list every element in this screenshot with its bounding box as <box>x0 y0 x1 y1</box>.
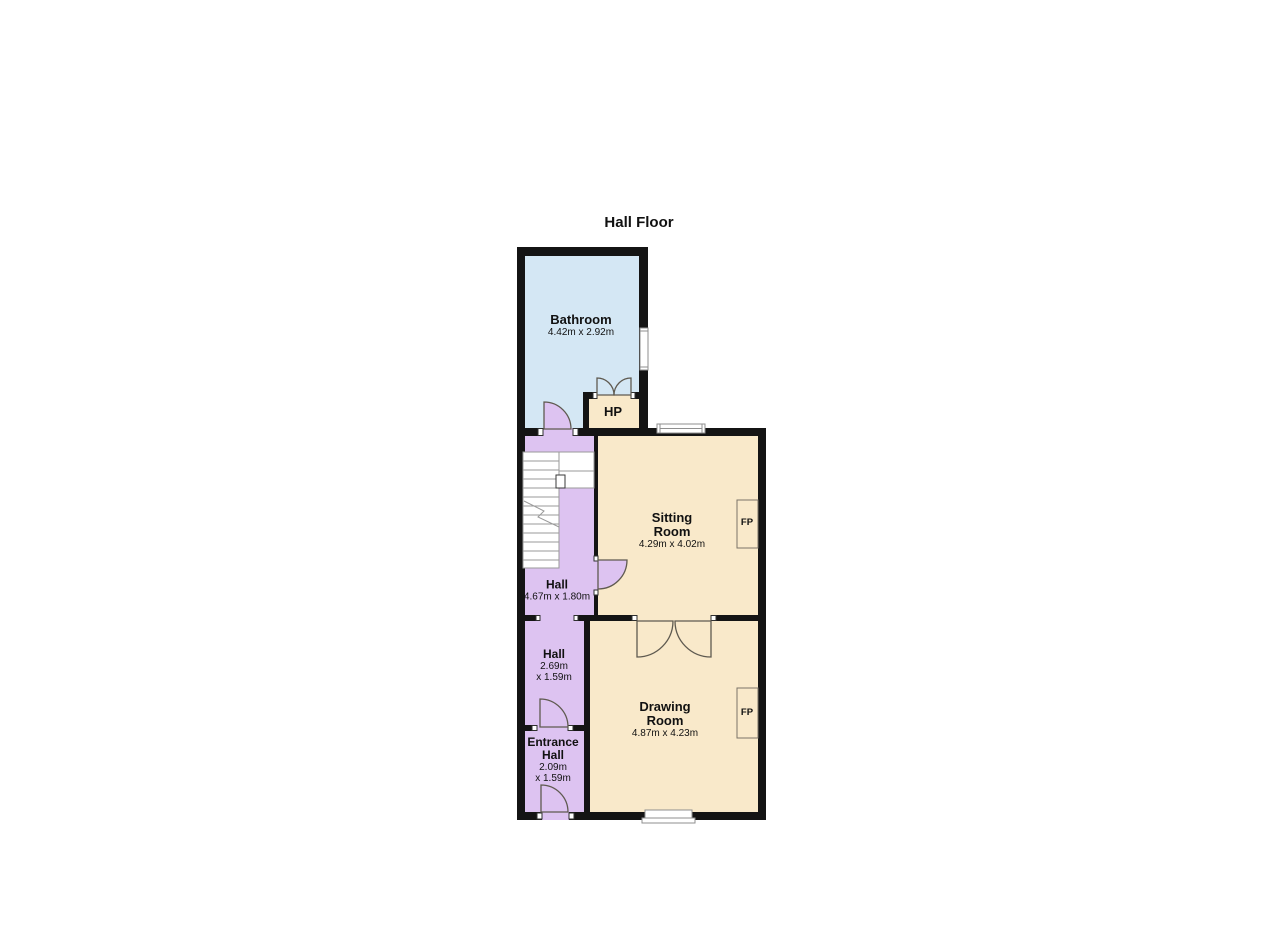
wall-mid-right <box>716 615 758 621</box>
room-name: Hall <box>524 579 590 592</box>
room-dims: x 1.59m <box>527 773 578 784</box>
wall-band-left-stub <box>517 428 538 436</box>
room-dims: 4.87m x 4.23m <box>632 729 698 740</box>
room-name: Entrance <box>527 736 578 749</box>
room-name: Bathroom <box>548 313 614 327</box>
room-name: Hall <box>527 749 578 762</box>
page-title: Hall Floor <box>604 215 673 231</box>
wall-hp-top-right <box>635 392 648 399</box>
wall-hall-sitting-upper <box>594 436 598 557</box>
stair-newel-post <box>556 475 565 488</box>
label-sitting-room: Sitting Room 4.29m x 4.02m <box>639 511 705 551</box>
room-name: Drawing <box>632 700 698 714</box>
label-hall-lower: Hall 2.69m x 1.59m <box>536 648 572 684</box>
room-name: Room <box>639 525 705 539</box>
wall-hall-sitting-lower <box>594 594 598 615</box>
room-dims: 4.42m x 2.92m <box>548 328 614 339</box>
floorplan-page: Hall Floor Bathroom 4.42m x 2.92m HP Sit… <box>0 0 1280 930</box>
wall-hall-drawing <box>584 615 590 812</box>
jamb <box>536 616 540 621</box>
floorplan-drawing <box>0 0 1280 930</box>
wall-mid-left-stub <box>517 615 536 621</box>
wall-top-outer <box>517 247 648 256</box>
wall-hp-left <box>583 392 589 436</box>
room-dims: 4.67m x 1.80m <box>524 593 590 604</box>
jamb <box>632 616 637 621</box>
room-dims: x 1.59m <box>536 673 572 684</box>
jamb <box>569 813 574 819</box>
room-name: Hall <box>536 648 572 661</box>
room-name: Sitting <box>639 511 705 525</box>
label-entrance-hall: Entrance Hall 2.09m x 1.59m <box>527 736 578 785</box>
jamb <box>594 590 598 595</box>
label-fp-sitting: FP <box>741 518 753 528</box>
jamb <box>574 616 578 621</box>
label-bathroom: Bathroom 4.42m x 2.92m <box>548 313 614 339</box>
jamb <box>532 726 537 731</box>
stair-run <box>523 488 559 568</box>
jamb <box>537 813 542 819</box>
label-hp: HP <box>604 405 622 419</box>
jamb <box>568 726 573 731</box>
label-drawing-room: Drawing Room 4.87m x 4.23m <box>632 700 698 740</box>
jamb <box>573 429 578 436</box>
drawing-room-window <box>642 810 695 823</box>
label-hall-upper: Hall 4.67m x 1.80m <box>524 579 590 604</box>
sitting-room-window <box>657 424 705 433</box>
wall-lowerhall-entrance-right <box>573 725 590 731</box>
room-dims: 4.29m x 4.02m <box>639 540 705 551</box>
jamb <box>538 429 543 436</box>
wall-lowerhall-entrance-left <box>517 725 532 731</box>
bathroom-window <box>640 328 648 370</box>
label-fp-drawing: FP <box>741 708 753 718</box>
jamb <box>711 616 716 621</box>
opening-sitting-drawing <box>637 615 711 621</box>
room-name: Room <box>632 714 698 728</box>
opening-hall-hall <box>536 615 578 621</box>
opening-front-door <box>542 812 569 820</box>
wall-right-outer <box>758 428 766 820</box>
